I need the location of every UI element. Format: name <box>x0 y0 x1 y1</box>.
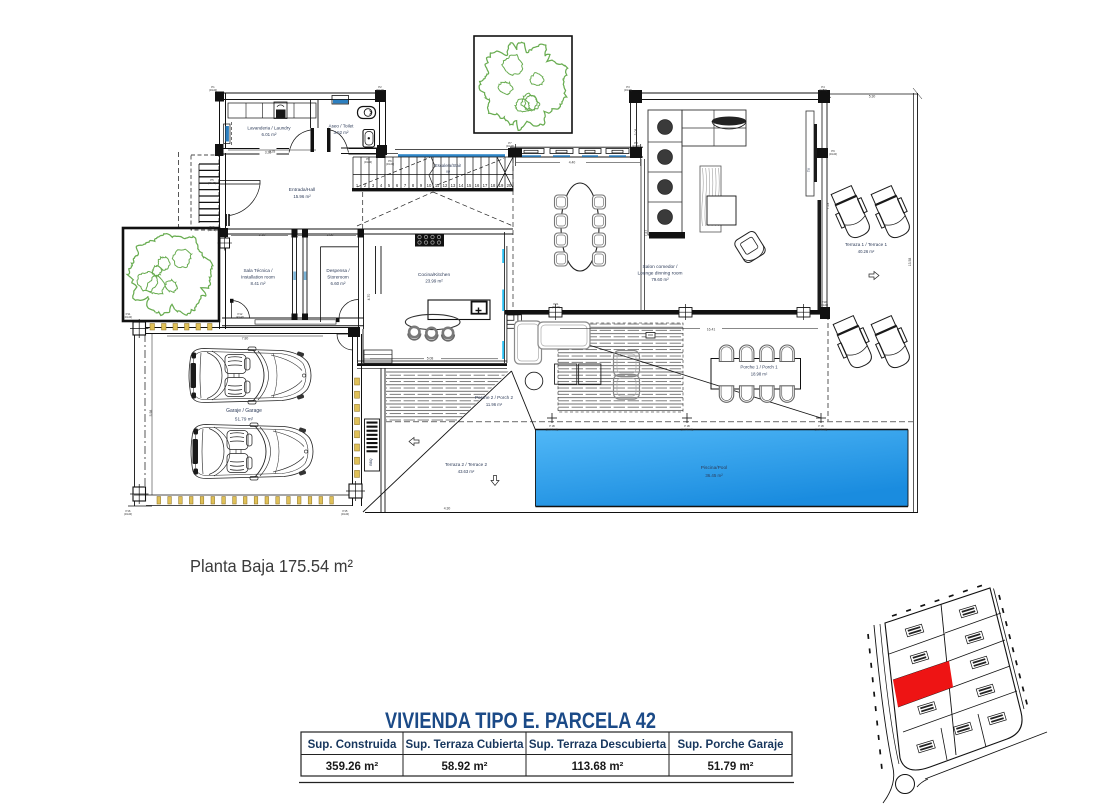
svg-text:[40x40]: [40x40] <box>209 89 217 92</box>
svg-text:2.00: 2.00 <box>327 233 334 237</box>
svg-text:10: 10 <box>427 183 432 188</box>
svg-text:Sup. Construida: Sup. Construida <box>308 739 397 751</box>
svg-text:5.08: 5.08 <box>427 357 434 361</box>
svg-text:5.98: 5.98 <box>149 410 153 417</box>
svg-text:7.80: 7.80 <box>242 337 249 341</box>
svg-text:Installation room: Installation room <box>241 275 275 280</box>
svg-text:[40x40]: [40x40] <box>208 182 216 185</box>
svg-text:Terraza 2 / Terrace 2: Terraza 2 / Terrace 2 <box>445 462 487 467</box>
svg-text:4.30: 4.30 <box>444 507 451 511</box>
svg-text:7.53: 7.53 <box>826 203 830 210</box>
svg-text:79.60 m²: 79.60 m² <box>651 277 669 282</box>
svg-text:36.45 m²: 36.45 m² <box>705 473 723 478</box>
svg-text:BBQ: BBQ <box>369 458 373 466</box>
svg-text:6.01 m²: 6.01 m² <box>262 132 277 137</box>
svg-text:18.98 m²: 18.98 m² <box>751 372 768 377</box>
svg-text:15: 15 <box>467 183 472 188</box>
svg-text:6.60 m²: 6.60 m² <box>331 281 346 286</box>
svg-text:18: 18 <box>491 183 496 188</box>
svg-text:Escalera/Stair: Escalera/Stair <box>435 163 462 168</box>
svg-text:[40x40]: [40x40] <box>632 145 640 148</box>
svg-text:[SUPR 9B]: [SUPR 9B] <box>815 428 828 432</box>
svg-text:16.41: 16.41 <box>707 328 716 332</box>
svg-text:8.41 m²: 8.41 m² <box>251 281 266 286</box>
svg-text:Porche 1 / Porch 1: Porche 1 / Porch 1 <box>740 365 778 370</box>
svg-text:13.58: 13.58 <box>908 258 912 267</box>
svg-text:40.26 m²: 40.26 m² <box>858 249 875 254</box>
svg-text:58.92 m²: 58.92 m² <box>441 761 487 773</box>
svg-text:Sup. Terraza Descubierta: Sup. Terraza Descubierta <box>529 739 667 751</box>
svg-text:Piscina/Pool: Piscina/Pool <box>701 465 727 471</box>
svg-text:12: 12 <box>443 183 448 188</box>
svg-text:up: up <box>446 170 450 174</box>
svg-text:23.99 m²: 23.99 m² <box>425 279 443 284</box>
svg-text:5.30: 5.30 <box>869 95 876 99</box>
svg-text:4.40: 4.40 <box>569 161 576 165</box>
svg-text:17: 17 <box>483 183 488 188</box>
svg-text:P 1B: P 1B <box>818 424 824 428</box>
svg-text:[40x40]: [40x40] <box>552 306 560 309</box>
svg-text:[40x40]: [40x40] <box>364 161 372 164</box>
svg-text:[40x40]: [40x40] <box>236 316 244 319</box>
svg-text:113.68 m²: 113.68 m² <box>572 761 624 773</box>
svg-text:[40x40]: [40x40] <box>819 89 827 92</box>
svg-text:Entrada/Hall: Entrada/Hall <box>289 187 315 193</box>
svg-text:Garaje / Garage: Garaje / Garage <box>226 408 262 414</box>
svg-text:Sup. Terraza Cubierta: Sup. Terraza Cubierta <box>405 739 524 751</box>
svg-text:[40x40]: [40x40] <box>624 89 632 92</box>
svg-text:15.96 m²: 15.96 m² <box>293 194 311 199</box>
svg-text:43.63 m²: 43.63 m² <box>458 469 475 474</box>
svg-text:Cocina/Kitchen: Cocina/Kitchen <box>418 272 451 278</box>
svg-text:[40x40]: [40x40] <box>376 89 384 92</box>
svg-text:[40x40]: [40x40] <box>386 163 394 166</box>
svg-text:51.79 m²: 51.79 m² <box>235 417 254 422</box>
svg-text:Aseo / Toilet: Aseo / Toilet <box>329 124 355 129</box>
svg-text:[40x40]: [40x40] <box>341 513 349 516</box>
svg-text:[40x40]: [40x40] <box>124 316 132 319</box>
svg-text:Planta Baja 175.54 m²: Planta Baja 175.54 m² <box>190 556 353 576</box>
svg-text:Sala Técnica /: Sala Técnica / <box>243 268 273 273</box>
svg-text:Salon comedor /: Salon comedor / <box>643 264 679 270</box>
svg-text:[40x40]: [40x40] <box>829 153 837 156</box>
svg-text:TV: TV <box>807 167 811 172</box>
svg-text:[40x40]: [40x40] <box>208 229 216 232</box>
svg-text:359.26 m²: 359.26 m² <box>326 761 379 773</box>
svg-text:2.10: 2.10 <box>259 233 266 237</box>
svg-text:VIVIENDA TIPO E. PARCELA 42: VIVIENDA TIPO E. PARCELA 42 <box>385 708 656 733</box>
svg-text:[40x40]: [40x40] <box>820 304 828 307</box>
svg-text:[40x40]: [40x40] <box>124 513 132 516</box>
svg-text:[SUPR 9B]: [SUPR 9B] <box>681 428 694 432</box>
svg-text:Storeroom: Storeroom <box>327 275 349 280</box>
svg-text:Despensa /: Despensa / <box>326 268 350 273</box>
svg-text:4.70: 4.70 <box>367 294 371 301</box>
svg-text:7.57: 7.57 <box>644 230 648 237</box>
svg-text:3.08: 3.08 <box>634 129 638 136</box>
svg-text:13: 13 <box>451 183 456 188</box>
svg-text:P 1B: P 1B <box>684 424 690 428</box>
svg-text:14: 14 <box>459 183 464 188</box>
svg-text:Terraza 1 / Terrace 1: Terraza 1 / Terrace 1 <box>845 242 887 247</box>
svg-text:P 1B: P 1B <box>549 424 555 428</box>
svg-text:51.79 m²: 51.79 m² <box>707 761 753 773</box>
svg-text:11.96 m²: 11.96 m² <box>486 402 503 407</box>
svg-text:16: 16 <box>475 183 480 188</box>
svg-text:3.52 m²: 3.52 m² <box>334 130 349 135</box>
svg-text:Lavanderia / Laundry: Lavanderia / Laundry <box>247 126 291 131</box>
svg-text:Sup. Porche Garaje: Sup. Porche Garaje <box>677 739 783 751</box>
svg-text:Porche 2 / Porch 2: Porche 2 / Porch 2 <box>475 395 513 400</box>
svg-text:[SUPR 9B]: [SUPR 9B] <box>546 428 559 432</box>
svg-text:Lounge dinning room: Lounge dinning room <box>637 271 682 277</box>
svg-text:[40x40]: [40x40] <box>506 145 514 148</box>
